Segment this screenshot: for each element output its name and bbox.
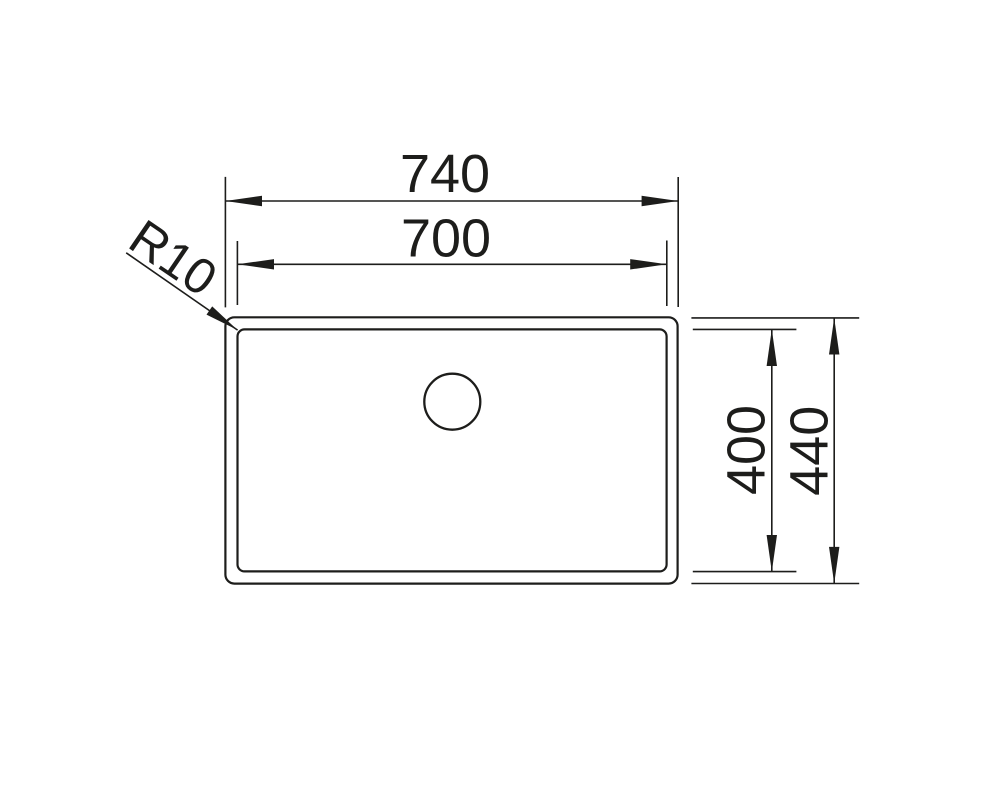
- svg-text:R10: R10: [120, 209, 227, 307]
- svg-text:400: 400: [717, 405, 777, 495]
- svg-text:440: 440: [780, 406, 840, 496]
- svg-text:740: 740: [400, 144, 490, 204]
- svg-text:700: 700: [401, 208, 491, 268]
